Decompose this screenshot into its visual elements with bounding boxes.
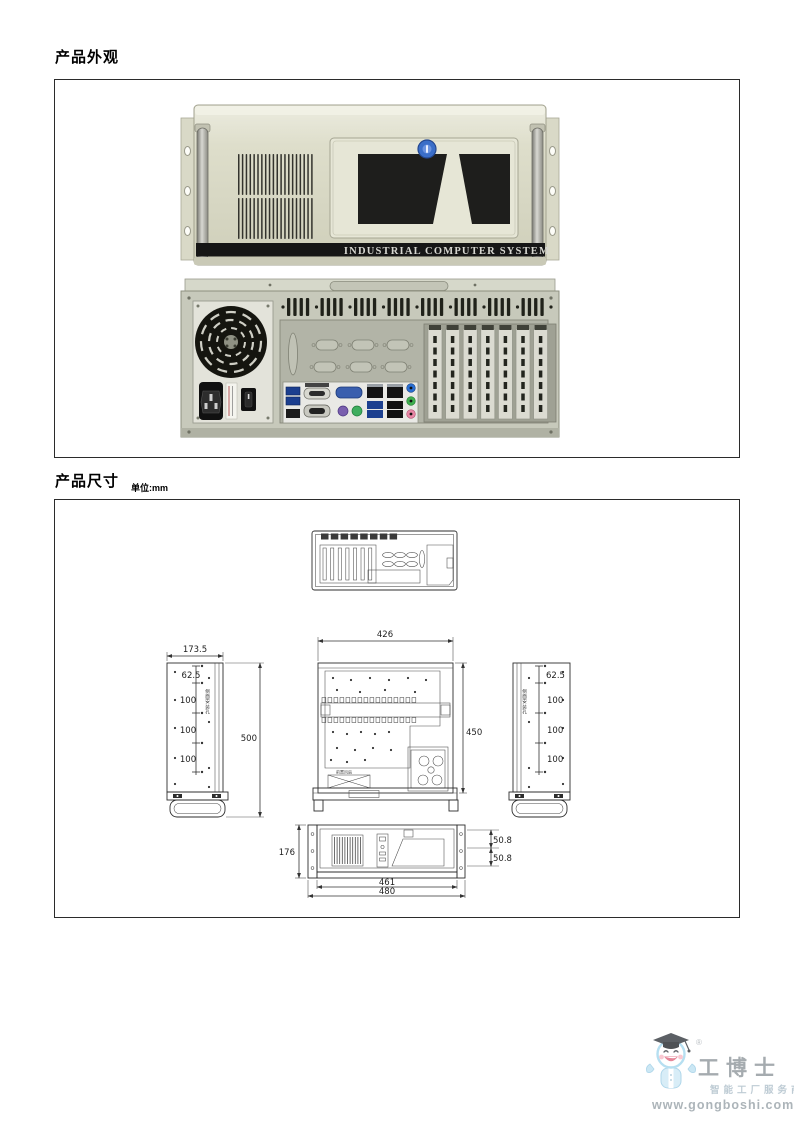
door-window-left [358,154,447,224]
logo-name: 工博士 [698,1052,782,1082]
ac-inlet [199,382,223,420]
rack-ear-left [181,118,194,260]
rear-top-lip [185,279,555,291]
unit-label: 单位:mm [131,481,168,494]
dim-offset: 62.5 [182,671,201,681]
front-view-photo: INDUSTRIAL COMPUTER SYSTEM [175,102,565,272]
front-handle-left [195,124,210,260]
logo-website: www.gongboshi.com [652,1098,794,1112]
dim-offset: 100 [547,755,563,765]
usb-port [367,410,383,418]
power-switch [241,388,256,411]
ps2-keyboard-port [338,406,348,416]
side-holes-label: 侧面安装孔 [522,688,527,715]
section-title-appearance: 产品外观 [55,46,119,67]
side-view-right: 62.5 100 100 100 侧面安装孔 [509,663,570,817]
usb-port [387,401,403,409]
displayport [286,409,300,418]
dim-offset: 62.5 [546,671,565,681]
section-title-dimensions: 产品尺寸 [55,470,119,491]
dim-offset: 100 [180,696,196,706]
brand-text: INDUSTRIAL COMPUTER SYSTEM [344,246,550,257]
dim-offset: 100 [180,726,196,736]
usb-port [286,397,300,405]
usb-port [387,410,403,418]
mascot-icon [644,1030,698,1092]
ps2-mouse-port [352,406,362,416]
psu-fan-grille [195,306,267,378]
serial-port-top [304,383,330,399]
psu-plan [408,747,448,791]
front-elevation-view: 176 50.8 50.8 461 480 [279,825,512,898]
dim-offset: 100 [180,755,196,765]
top-plan-view: 前置风扇 426 450 [313,630,482,811]
expansion-slot-covers [424,324,556,422]
side-holes-label: 侧面安装孔 [205,688,210,715]
dim-front-outer-width: 480 [379,887,395,897]
dim-top-width: 426 [377,630,393,640]
usb-port [286,387,300,395]
rear-elevation-drawing [312,531,457,590]
dim-top-depth: 450 [466,728,482,738]
psu-label [226,383,237,419]
dim-unit-spacing: 50.8 [493,854,512,864]
dim-offset: 100 [547,726,563,736]
fan-label: 前置风扇 [336,769,352,775]
document-page: 产品外观 [0,0,794,1123]
rack-ear-right [546,118,559,260]
psu-area [193,301,273,423]
io-shield [283,382,418,423]
serial-port-bottom [304,405,330,417]
dim-side-height: 500 [241,734,257,744]
chassis-top-highlight [195,106,545,115]
front-bottom-edge [194,257,546,265]
appearance-box: INDUSTRIAL COMPUTER SYSTEM [54,79,740,458]
front-handle-right [530,124,545,260]
dimension-drawing: 173.5 62.5 100 100 100 侧面安装孔 500 [55,500,737,915]
dim-offset: 100 [547,696,563,706]
rear-handle-cutout [330,282,448,291]
dim-side-width: 173.5 [183,645,207,655]
front-fan-plan: 前置风扇 [328,769,370,789]
registered-mark: ® [696,1038,702,1047]
dim-front-height: 176 [279,848,295,858]
side-view-left: 173.5 62.5 100 100 100 侧面安装孔 500 [167,645,264,817]
front-door-panel [330,138,518,238]
vga-port [336,387,362,398]
ethernet-port [367,384,383,398]
brand-stripe: INDUSTRIAL COMPUTER SYSTEM [196,243,550,257]
ethernet-port [387,384,403,398]
logo-tagline: 智能工厂服务商 [710,1082,794,1096]
dim-unit-spacing: 50.8 [493,836,512,846]
knockout-slot [289,333,298,375]
door-lock [418,140,436,158]
dimensions-box: 173.5 62.5 100 100 100 侧面安装孔 500 [54,499,740,918]
rear-bottom-edge [181,428,559,437]
usb-port [367,401,383,409]
gongboshi-logo: 工博士 ® 智能工厂服务商 www.gongboshi.com [644,1030,792,1116]
rear-view-photo [175,276,565,444]
